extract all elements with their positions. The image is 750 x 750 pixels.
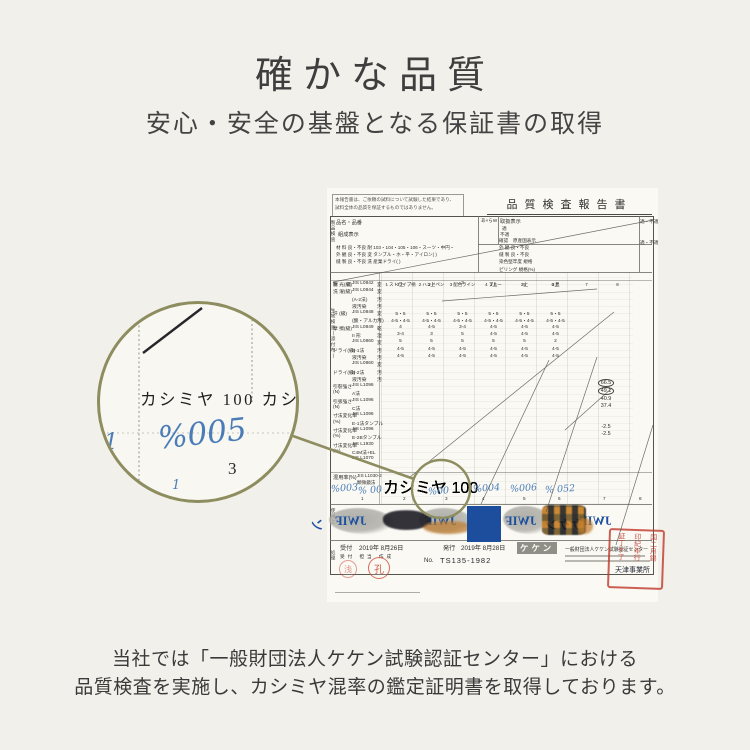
measurement-plain-1: 40.9 [586, 396, 626, 402]
table-row: 汗 (級)JIS L0848変5・55・55・55・55・55・5 [333, 310, 649, 317]
right-block-rows: 外 観 良・不良縫 製 良・不良染色堅牢度 規格ピリング 規格(%) [499, 245, 619, 274]
measurement-circled-1: 66.5 [586, 379, 626, 387]
report-no-label: No. [424, 557, 434, 564]
table-row: (酸・アルカリ)汚4-5・4-54-5・4-54-5・4-54-5・4-54-5… [333, 317, 649, 324]
field-gensankoku: 原産国表示 [513, 238, 536, 244]
magnified-number: 3 [228, 459, 237, 479]
handwritten-value: % 00 [358, 484, 383, 497]
divider [330, 504, 652, 505]
right-block-row: 染色堅牢度 規格 [499, 259, 619, 266]
column-number: 3 [445, 496, 448, 501]
magnified-blue-tick: 1 [172, 478, 180, 493]
round-stamp-2: 孔 [368, 557, 390, 579]
watermark-band-item [423, 521, 473, 534]
measurement-circled-2: 49.1 [586, 387, 626, 395]
handwritten-value: %006 [510, 482, 538, 495]
caption-line-2: 品質検査を実施し、カシミヤ混率の鑑定証明書を取得しております。 [0, 672, 750, 699]
column-number: 1 [361, 496, 364, 501]
watermark-band-item [577, 518, 593, 534]
keken-stamp-box: ケケン [517, 542, 557, 554]
field-teki-futeki-1: 適・不適 [640, 219, 658, 225]
field-kumisei: 組成表示 [338, 231, 359, 238]
mixing-jis: JIS L1030-2 [357, 473, 382, 478]
page: { "page": { "title": "確かな品質", "subtitle"… [0, 0, 750, 750]
field-kakunin: 確認 [499, 238, 508, 244]
measurement-lower-2: -2.5 [586, 431, 626, 437]
table-row: 液汚染汚 [333, 303, 649, 310]
round-stamp-1: 浅 [339, 560, 357, 578]
bottom-pen-line [335, 592, 420, 593]
column-number: 2 [403, 496, 406, 501]
table-row: 寸法変化率JIS L1096 [333, 412, 649, 419]
receipt-date: 2019年 8月26日 [359, 543, 403, 552]
table-row: JIS L1070 [333, 456, 649, 463]
watermark-band-item [467, 506, 501, 542]
table-row: ドライ(級)B-1法汚4-54-54-54-54-54-5 [333, 347, 649, 354]
document-title: 品質検査報告書 [487, 196, 652, 215]
material-rows: 材 料 良・不良 耐 103・104・105・106・スーツ・中円・外 観 良・… [336, 245, 496, 267]
notice-line-1: 本報告書は、ご依頼の試料について試験した結果であり、 [335, 196, 461, 204]
mixing-label: 混用率(%) [333, 474, 357, 481]
table-row: 寸法変化率JIS L1930 [333, 442, 649, 449]
column-number: 5 [523, 496, 526, 501]
watermark-band-item: ン [311, 514, 324, 533]
handwritten-value: % 052 [545, 483, 576, 496]
notice-box: 本報告書は、ご依頼の試料について試験した結果であり、 試料全体の品質を保証するも… [332, 194, 464, 217]
field-teki-futeki-2: 適・不適 [640, 240, 658, 246]
certificate-paper: 本報告書は、ご依頼の試料について試験した結果であり、 試料全体の品質を保証するも… [327, 188, 658, 602]
table-row: 液汚染汚4-54-54-54-54-54-5 [333, 354, 649, 361]
vertical-label-kiji: 生地検査(添付布) [330, 308, 336, 438]
stamp-column: 国二月錫 [647, 533, 657, 585]
report-no-value: TS135-1982 [440, 556, 491, 565]
material-row: 縫 製 良・不良 洗 産業ドライ( ) [336, 259, 496, 266]
issue-date: 2019年 8月28日 [461, 543, 505, 552]
table-row: JIS L0860変555552 [333, 339, 649, 346]
vertical-label-shori: 処理 [330, 550, 336, 570]
field-a-mark: あ×らW [481, 218, 497, 224]
stamp-column: 印紀年行 [631, 533, 641, 585]
table-row: (%)C4M法+EL [333, 449, 649, 456]
notice-line-2: 試料全体の品質を保証するものではありません。 [335, 204, 461, 212]
field-hinmei: 品名・品番 [336, 219, 362, 226]
table-row: (A-2法)汚 [333, 296, 649, 303]
table-row: 洗 濯(級)JIS L0844変 [333, 288, 649, 295]
handwritten-value: %004 [473, 482, 501, 495]
column-number: 6 [558, 496, 561, 501]
table-row: 耐 光(級)JIS L0842変3上3上33上3上3上 [333, 281, 649, 288]
magnified-blue-mark: 1 [104, 430, 118, 455]
table-row: 摩 擦(級)JIS L0849乾44-53-44-54-54-5 [333, 325, 649, 332]
table-row: ドライ(級)B-2法汚 [333, 369, 649, 376]
issue-label: 発行 [443, 543, 455, 552]
red-square-stamp: 国二月錫印紀年行証丁ケ了 [607, 528, 665, 590]
watermark-band-item: JWIF [505, 514, 536, 529]
measurement-lower-1: -2.5 [586, 424, 626, 430]
page-subtitle: 安心・安全の基盤となる保証書の取得 [0, 104, 750, 140]
magnifier-circle: カシミヤ 100 カシ %005 3 1 1 [97, 301, 299, 503]
caption-line-1: 当社では「一般財団法人ケケン試験認証センター」における [0, 644, 750, 671]
table-row: JIS L0860変 [333, 361, 649, 368]
table-row: II 形湿3-4354-54-54-5 [333, 332, 649, 339]
magnified-fiber-text: カシミヤ 100 カシ [140, 386, 299, 410]
page-title: 確かな品質 [0, 44, 750, 99]
column-number: 4 [482, 496, 485, 501]
stamp-column: 証丁ケ了 [615, 532, 625, 584]
measurement-plain-2: 37.4 [586, 403, 626, 409]
watermark-band-item: JWIF [335, 514, 366, 529]
receipt-label: 受付 [340, 543, 352, 552]
field-toriatsukai: 取扱表示 [500, 218, 521, 225]
column-number: 7 [603, 496, 606, 501]
column-number: 8 [639, 496, 642, 501]
handwritten-value: %003 [331, 482, 359, 495]
